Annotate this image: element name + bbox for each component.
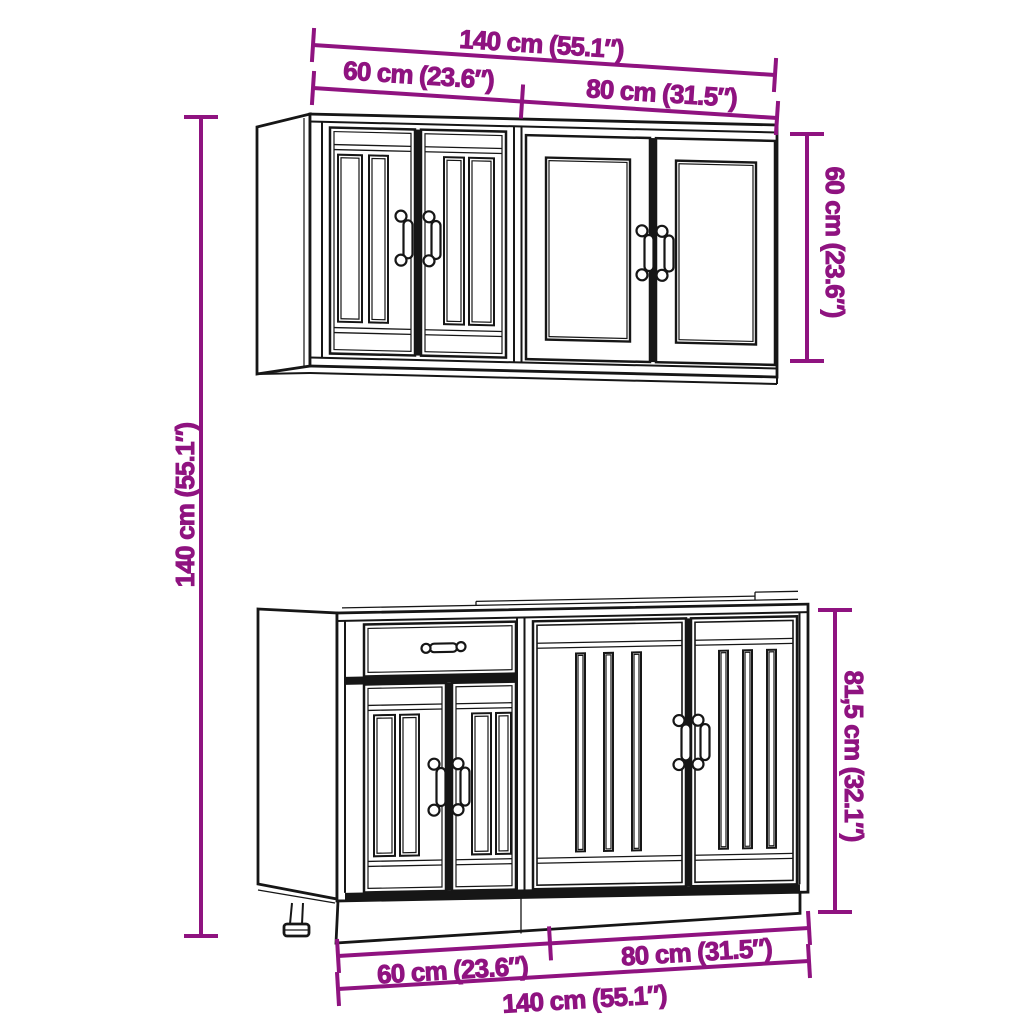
wall-cabinet-front xyxy=(310,114,777,384)
base-drawer xyxy=(364,622,516,677)
wall-left-door-1 xyxy=(330,127,415,355)
dim-label-bottom-total: 140 cm (55.1″) xyxy=(501,979,667,1019)
base-cabinet-side-panel xyxy=(258,609,337,899)
wall-right-door-1 xyxy=(526,135,650,362)
drawer-handle xyxy=(422,642,466,653)
dim-label-top-total: 140 cm (55.1″) xyxy=(458,24,624,65)
dim-label-total-height: 140 cm (55.1″) xyxy=(170,423,200,588)
dim-label-wall-height: 60 cm (23.6″) xyxy=(820,167,850,318)
wall-cabinet xyxy=(257,114,777,384)
dim-base-height: 81,5 cm (32.1″) xyxy=(818,610,869,912)
kitchen-cabinet-set-dimension-diagram: 140 cm (55.1″) 60 cm (23.6″) 80 cm (31.5… xyxy=(0,0,1024,1024)
dim-wall-height: 60 cm (23.6″) xyxy=(790,134,850,361)
dim-label-top-left-unit: 60 cm (23.6″) xyxy=(342,55,495,95)
cabinet-leg xyxy=(284,903,309,936)
dim-label-base-height: 81,5 cm (32.1″) xyxy=(839,670,869,841)
wall-cabinet-side-panel xyxy=(257,114,310,374)
base-left-door-1 xyxy=(364,683,446,893)
dim-total-height: 140 cm (55.1″) xyxy=(170,117,218,936)
base-cabinet xyxy=(258,591,808,943)
base-cabinet-front xyxy=(336,591,808,943)
diagram-canvas: 140 cm (55.1″) 60 cm (23.6″) 80 cm (31.5… xyxy=(0,0,1024,1024)
base-right-door-1 xyxy=(533,618,686,889)
